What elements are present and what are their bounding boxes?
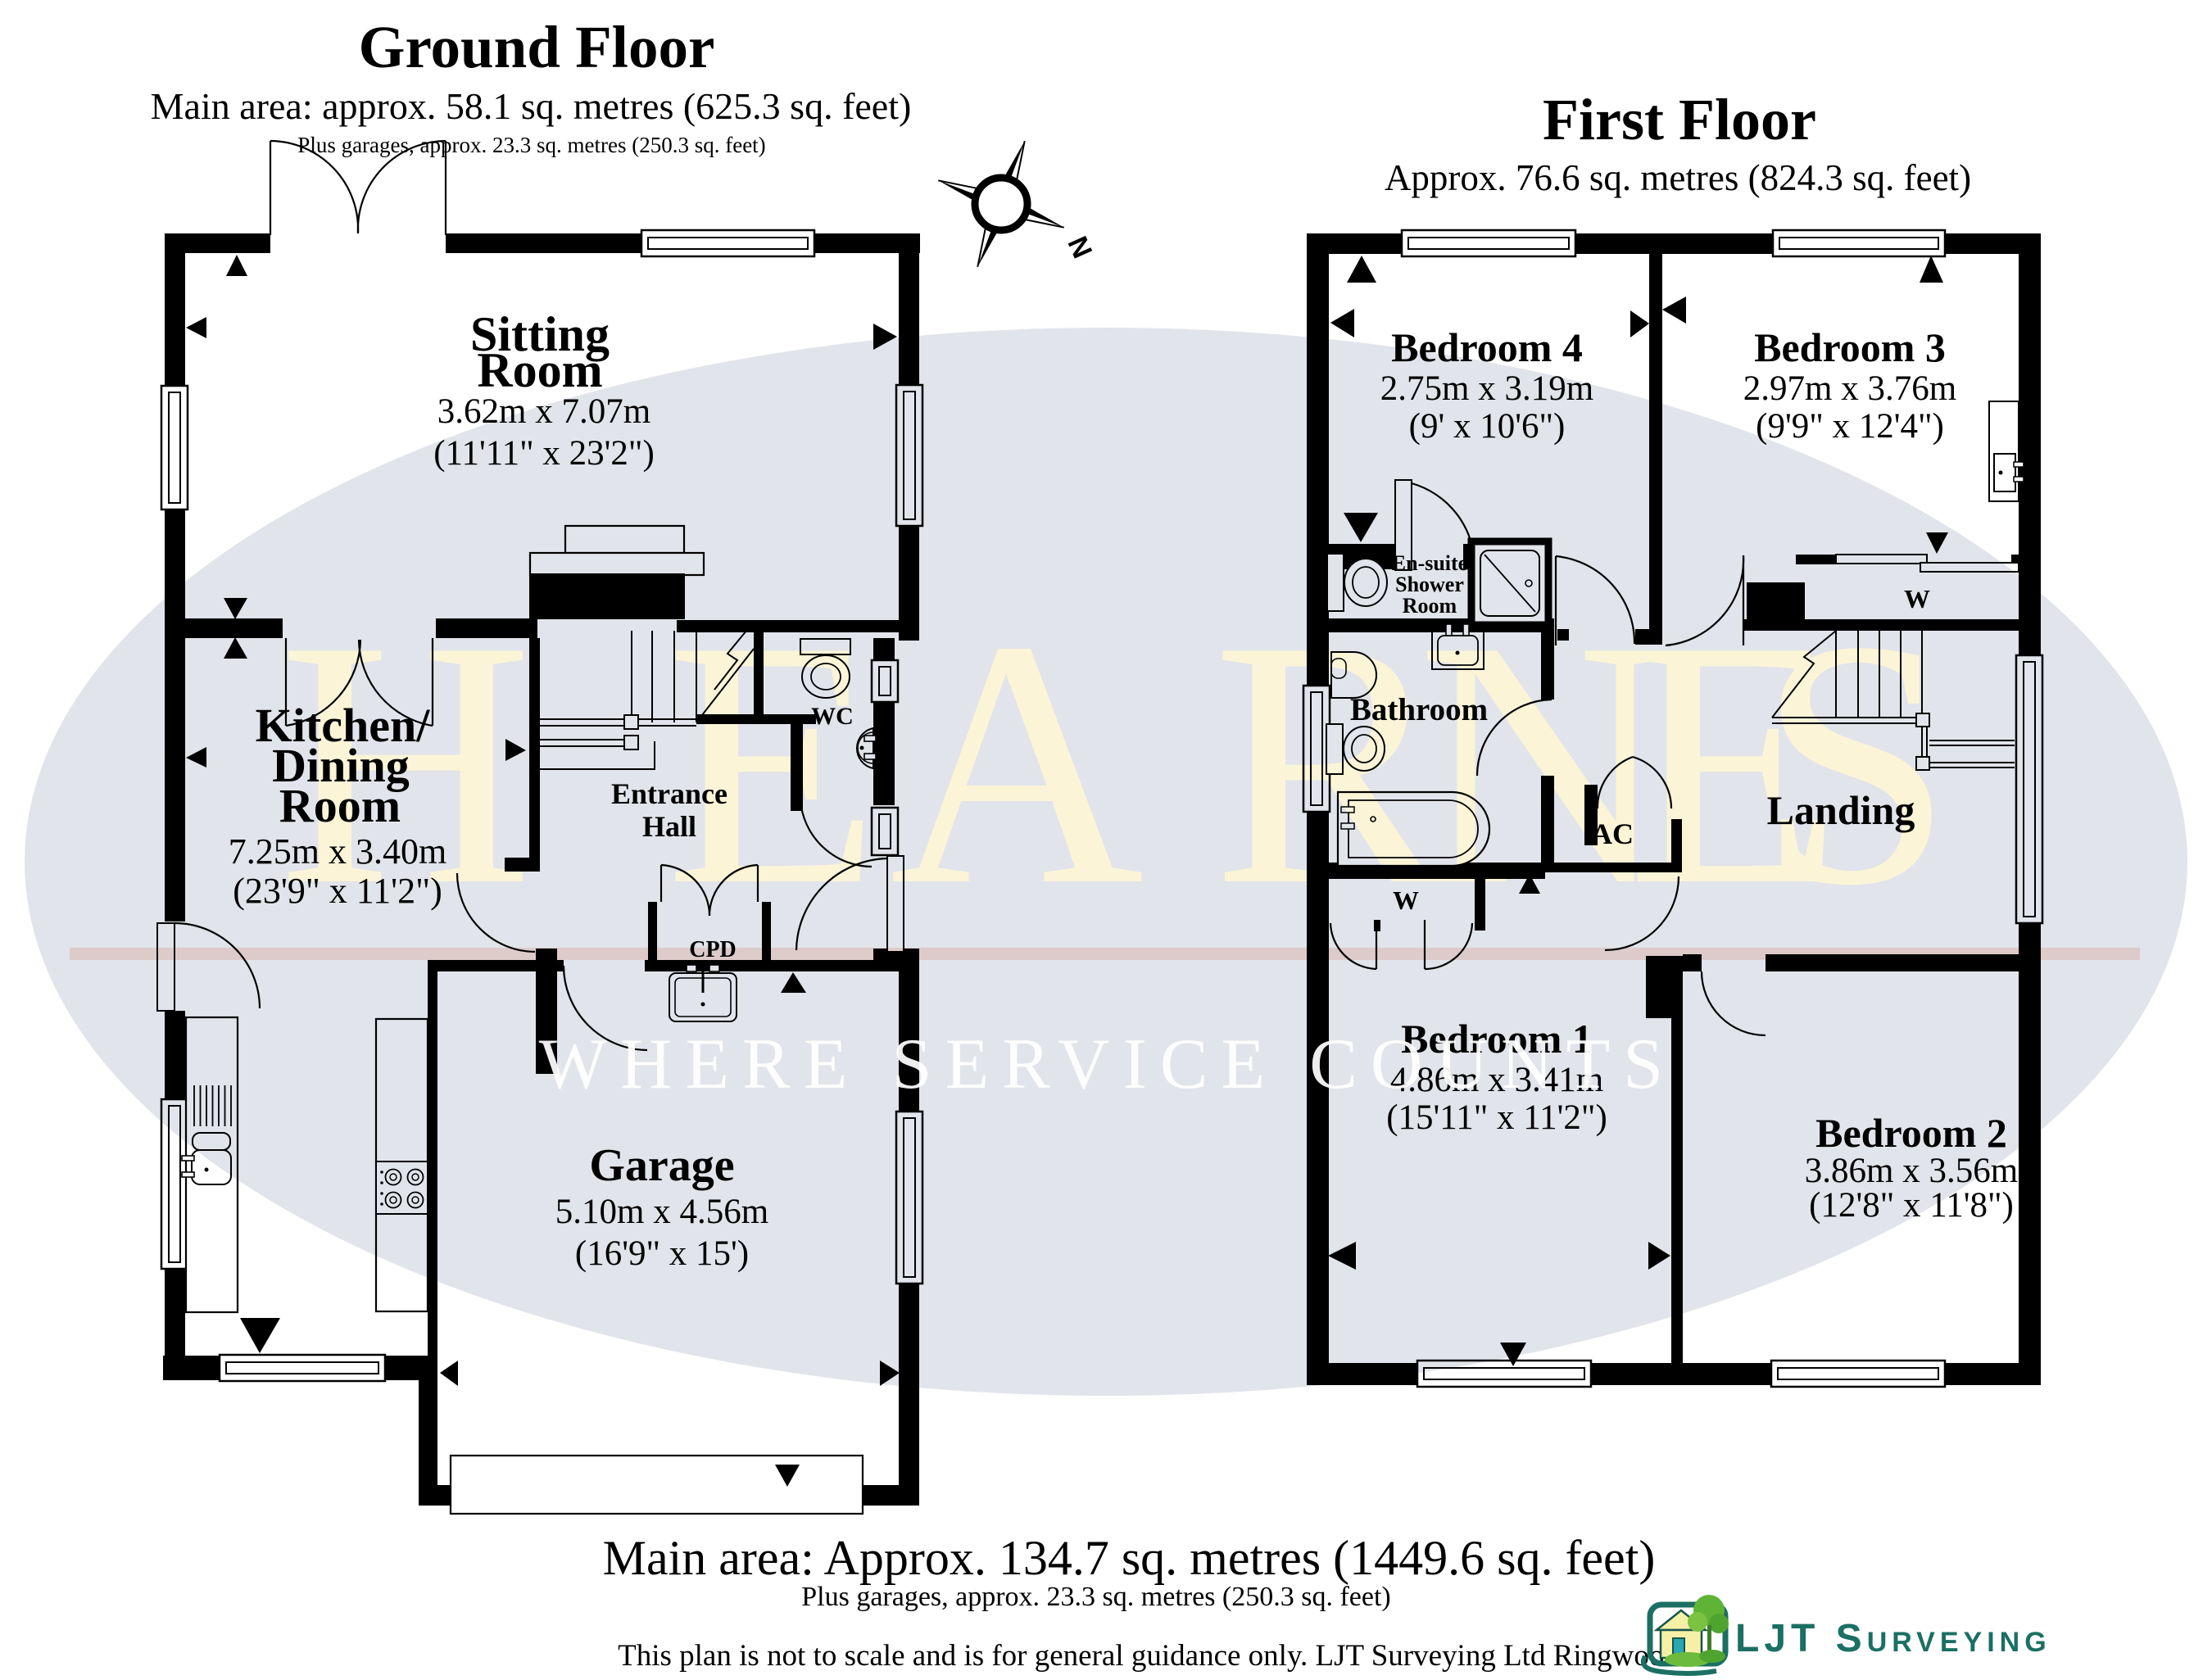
svg-text:Plus garages, approx. 23.3 sq.: Plus garages, approx. 23.3 sq. metres (2… (801, 1582, 1391, 1612)
svg-text:Room: Room (477, 343, 602, 397)
svg-text:WHERE SERVICE COUNTS: WHERE SERVICE COUNTS (539, 1025, 1677, 1104)
svg-text:Main area: approx. 58.1 sq. me: Main area: approx. 58.1 sq. metres (625.… (151, 85, 912, 127)
svg-text:HEARNES: HEARNES (279, 568, 1953, 958)
svg-text:Approx. 76.6 sq. metres (824.3: Approx. 76.6 sq. metres (824.3 sq. feet) (1385, 157, 1971, 198)
svg-text:First Floor: First Floor (1543, 87, 1816, 152)
svg-text:Bedroom 3: Bedroom 3 (1754, 324, 1946, 370)
svg-text:Ground Floor: Ground Floor (359, 14, 715, 80)
svg-text:Main area: Approx. 134.7 sq. m: Main area: Approx. 134.7 sq. metres (144… (603, 1531, 1656, 1585)
svg-text:2.97m x 3.76m: 2.97m x 3.76m (1743, 369, 1956, 408)
svg-text:This plan is not to scale and: This plan is not to scale and is for gen… (618, 1639, 1679, 1673)
svg-text:(9'9" x 12'4"): (9'9" x 12'4") (1756, 407, 1944, 446)
svg-text:LJT Surveying: LJT Surveying (1735, 1617, 2051, 1660)
svg-text:Plus garages, approx. 23.3 sq.: Plus garages, approx. 23.3 sq. metres (2… (297, 133, 765, 157)
